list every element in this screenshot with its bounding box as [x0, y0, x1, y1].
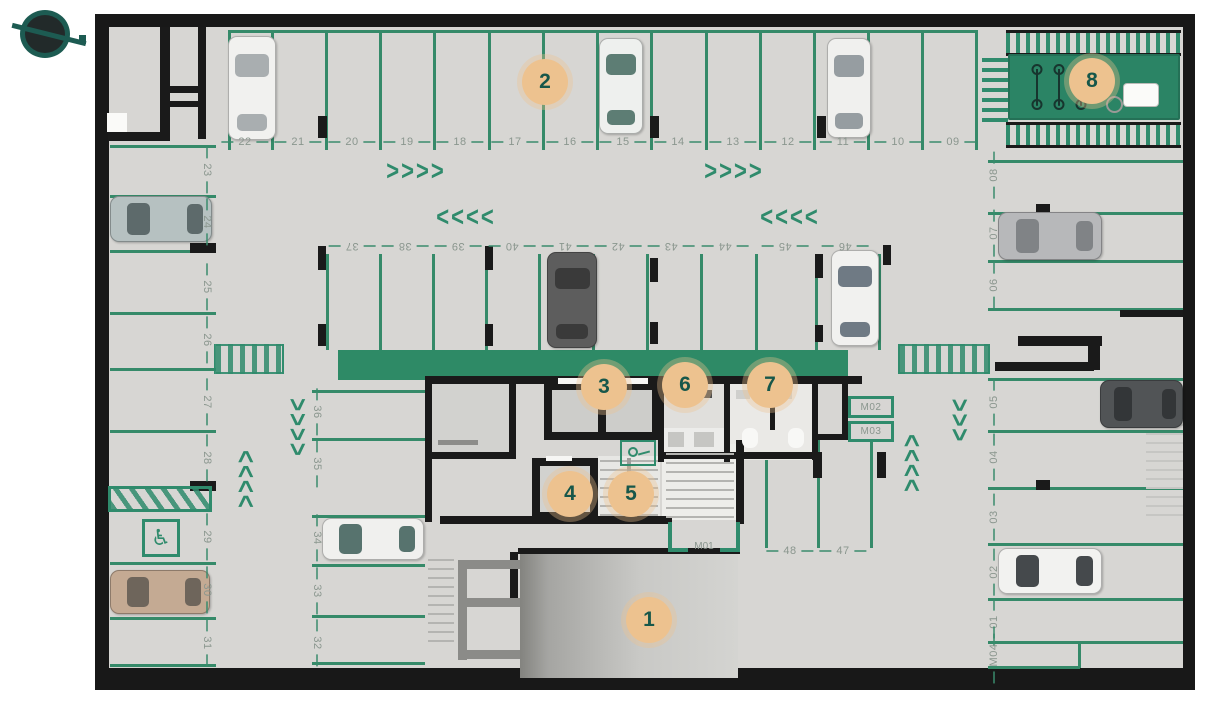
bicycle-icon: [1052, 64, 1066, 110]
legend-marker[interactable]: 2: [522, 59, 568, 105]
room-detail: [438, 440, 478, 445]
wall-segment: [813, 452, 822, 478]
parking-line: [646, 254, 649, 350]
parking-spot-number: 18: [436, 136, 483, 148]
legend-marker[interactable]: 8: [1069, 58, 1115, 104]
room-detail: [668, 432, 684, 447]
parking-line: [110, 562, 216, 565]
parking-spot-number: 26: [201, 316, 213, 363]
parking-spot-number: 06: [988, 261, 1000, 308]
wall-segment: [425, 376, 432, 522]
direction-arrow: <<<<: [760, 203, 819, 231]
room-detail: [788, 428, 804, 448]
wall-segment: [817, 116, 826, 138]
wall-segment: [485, 324, 493, 346]
parking-line: [379, 32, 382, 150]
direction-arrow: >>>>: [898, 432, 926, 491]
parking-spot-number: 03: [988, 493, 1000, 540]
parking-line: [700, 254, 703, 350]
wall-segment: [883, 245, 891, 265]
parking-line: [433, 32, 436, 150]
parking-spot-number: 19: [383, 136, 430, 148]
parking-line: [326, 254, 329, 350]
parking-line: [988, 543, 1183, 546]
bicycle-icon: [1030, 64, 1044, 110]
parking-spot-number: 02: [988, 548, 1000, 595]
wall-segment: [1036, 480, 1050, 490]
car: [998, 548, 1102, 594]
wall-segment: [1120, 310, 1183, 317]
parking-line: [988, 666, 1080, 669]
parking-spot-number: 05: [988, 378, 1000, 425]
brand-logo: [14, 8, 86, 66]
parking-spot-number: 45: [761, 240, 808, 252]
parking-line: [988, 260, 1183, 263]
parking-spot-number: 12: [764, 136, 811, 148]
parking-spot-number: 23: [201, 146, 213, 193]
parking-line: [705, 32, 708, 150]
bike-rack-stripes: [1006, 122, 1181, 148]
parking-spot-number: 39: [434, 240, 481, 252]
parking-spot-number: 15: [599, 136, 646, 148]
parking-spot-number: 41: [541, 240, 588, 252]
pedestrian-crossing: [898, 344, 990, 374]
parking-line: [988, 641, 1183, 644]
wall-segment: [427, 452, 516, 459]
legend-marker[interactable]: 5: [608, 471, 654, 517]
parking-line: [312, 390, 425, 393]
parking-spot-number: 32: [311, 619, 323, 666]
parking-line: [110, 430, 216, 433]
moto-spot-line: [668, 522, 672, 550]
wall-segment: [108, 132, 170, 141]
direction-arrow: >>>>: [386, 157, 445, 185]
pedestrian-crossing: [214, 344, 284, 374]
wall-segment: [995, 362, 1094, 371]
parking-line: [813, 32, 816, 150]
parking-spot-number: 13: [709, 136, 756, 148]
wall-segment: [1088, 336, 1100, 370]
parking-spot-number: 37: [328, 240, 375, 252]
wall-segment-gray: [458, 650, 520, 659]
ramp-edge: [520, 554, 548, 678]
car: [228, 36, 276, 140]
moto-spot-label: M01: [684, 540, 724, 552]
parking-line: [379, 254, 382, 350]
parking-spot-number: 04: [988, 433, 1000, 480]
parking-line: [312, 564, 425, 567]
wall-segment: [815, 254, 823, 278]
car: [827, 38, 871, 138]
parking-spot-number: 33: [311, 567, 323, 614]
room-detail: [546, 456, 572, 461]
parking-line: [312, 662, 425, 665]
parking-line: [228, 30, 978, 33]
wall-segment: [815, 325, 823, 342]
moto-spot-line: [736, 522, 740, 550]
parking-line: [538, 254, 541, 350]
parking-spot-number: 30: [201, 566, 213, 613]
moto-spot: M03: [848, 421, 894, 442]
parking-spot-number: 08: [988, 151, 1000, 198]
parking-spot-number: 28: [201, 434, 213, 481]
parking-line: [110, 368, 216, 371]
wall-segment: [877, 452, 886, 478]
direction-arrow: >>>: [945, 399, 973, 444]
stairs: [1146, 422, 1183, 516]
legend-marker[interactable]: 4: [547, 471, 593, 517]
logo-mark-icon: [79, 35, 86, 44]
parking-spot-number: 24: [201, 198, 213, 245]
direction-arrow: <<<<: [436, 203, 495, 231]
parking-spot-number: 42: [594, 240, 641, 252]
parking-spot-number: M04: [988, 627, 1000, 684]
parking-line: [975, 32, 978, 150]
direction-arrow: >>>>: [232, 448, 260, 507]
parking-line: [432, 254, 435, 350]
parking-spot-number: 14: [654, 136, 701, 148]
parking-line: [988, 160, 1183, 163]
moto-spot: M02: [848, 396, 894, 418]
car: [831, 250, 879, 346]
parking-spot-number: 29: [201, 513, 213, 560]
direction-arrow: >>>>: [704, 157, 763, 185]
wall-segment: [318, 116, 327, 138]
bike-rack-stripes: [982, 56, 1008, 122]
parking-line: [312, 438, 425, 441]
wall-segment: [812, 382, 818, 460]
parking-line: [759, 32, 762, 150]
wall-segment: [509, 384, 516, 458]
parking-line: [488, 32, 491, 150]
parking-spot-number: 25: [201, 263, 213, 310]
parking-spot-number: 47: [819, 545, 866, 557]
parking-spot-number: 48: [766, 545, 813, 557]
wall-segment: [736, 440, 744, 524]
parking-spot-number: 11: [820, 136, 866, 148]
legend-marker[interactable]: 6: [662, 362, 708, 408]
legend-marker[interactable]: 1: [626, 597, 672, 643]
car: [110, 196, 212, 242]
parking-spot-number: 09: [929, 136, 976, 148]
wall-segment-gray: [458, 560, 520, 569]
wall-segment: [198, 27, 206, 139]
wall-segment: [650, 322, 658, 344]
car: [599, 38, 643, 134]
parking-spot-number: 31: [201, 619, 213, 666]
parking-spot-number: 46: [821, 240, 868, 252]
bike-rack-stripes: [1006, 30, 1181, 56]
parking-spot-number: 38: [381, 240, 428, 252]
parking-line: [110, 312, 216, 315]
wall-segment: [160, 86, 206, 93]
car: [998, 212, 1102, 260]
legend-marker[interactable]: 7: [747, 362, 793, 408]
direction-arrow: >>>>: [283, 398, 311, 457]
car: [322, 518, 424, 560]
stairs: [428, 554, 454, 642]
wall-segment: [318, 246, 326, 270]
room-detail: [107, 113, 127, 132]
wall-segment-gray: [458, 560, 467, 660]
accessible-parking-icon: ♿: [142, 519, 180, 557]
circle-detail: [1106, 96, 1123, 113]
wall-segment: [160, 27, 170, 139]
parking-spot-number: 34: [311, 514, 323, 561]
car: [1100, 380, 1183, 428]
storage-box: [1124, 84, 1158, 106]
parking-spot-number: 20: [328, 136, 375, 148]
parking-spot-number: 21: [274, 136, 321, 148]
no-parking-hatch: [108, 486, 212, 512]
amenity-icon: [620, 440, 656, 466]
parking-line: [921, 32, 924, 150]
parking-spot-number: 22: [221, 136, 268, 148]
parking-spot-number: 07: [988, 209, 1000, 256]
parking-spot-number: 44: [701, 240, 748, 252]
wall-segment-gray: [458, 598, 520, 607]
parking-spot-number: 43: [647, 240, 694, 252]
wall-segment: [650, 116, 659, 138]
room-detail: [742, 428, 758, 448]
wall-segment: [318, 324, 326, 346]
parking-spot-number: 27: [201, 378, 213, 425]
wall-segment: [160, 101, 206, 107]
parking-line: [870, 440, 873, 548]
legend-marker[interactable]: 3: [581, 364, 627, 410]
parking-spot-number: 17: [491, 136, 538, 148]
parking-line: [1078, 641, 1081, 668]
parking-line: [755, 254, 758, 350]
parking-spot-number: 40: [488, 240, 535, 252]
parking-spot-number: 16: [546, 136, 593, 148]
wall-segment: [650, 258, 658, 282]
parking-line: [312, 615, 425, 618]
stairs: [666, 448, 734, 518]
wall-segment: [812, 434, 848, 440]
parking-floor-plan: ♿M01222120191817161514131211100937383940…: [0, 0, 1228, 704]
room-detail: [694, 432, 714, 447]
parking-spot-number: 10: [874, 136, 921, 148]
parking-line: [988, 598, 1183, 601]
car: [110, 570, 210, 614]
car: [547, 252, 597, 348]
